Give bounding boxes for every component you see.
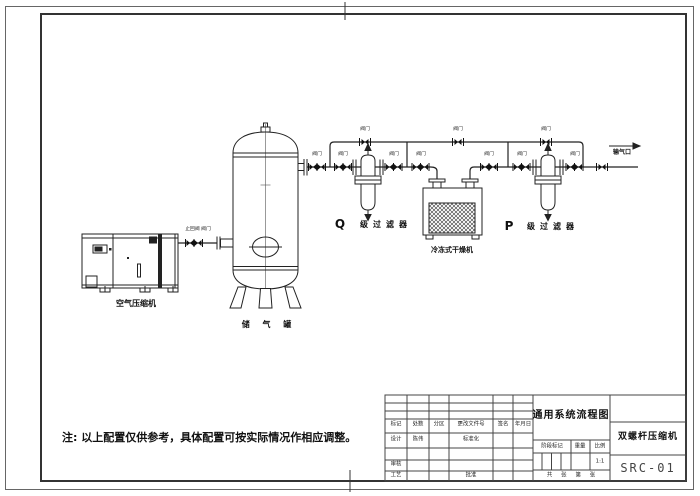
tb-header-count: 处数 (413, 422, 424, 427)
valve-tag: 阀门 (416, 152, 426, 157)
valve-tag: 阀门 (484, 152, 494, 157)
tank-symbol (230, 123, 307, 308)
valve-tag: 阀门 (517, 152, 527, 157)
p-filter-symbol (533, 144, 563, 221)
compressor-label: 空气压缩机 (116, 300, 156, 308)
tb-scale-value: 1:1 (596, 459, 605, 464)
tb-design-label: 设计 (391, 437, 402, 442)
check-valve-label: 止回阀 阀门 (185, 227, 211, 232)
tb-header-docno: 更改文件号 (457, 422, 484, 427)
discharge-pipe (178, 237, 233, 250)
tb-header-date: 年月日 (515, 422, 531, 427)
drawing-title: 通用系统流程图 (533, 411, 610, 421)
drawing-number: SRC-01 (620, 462, 675, 474)
q-filter-label: 级过滤器 (360, 221, 412, 229)
tb-designer-name: 陈伟 (413, 437, 424, 442)
tb-header-mark: 标记 (391, 422, 402, 427)
tb-scale-label: 比例 (595, 444, 606, 449)
compressor-symbol (82, 234, 178, 292)
valve-tag: 阀门 (389, 152, 399, 157)
product-name: 双螺杆压缩机 (618, 433, 678, 442)
centering-marks (345, 2, 350, 492)
tb-review-label: 审核 (391, 462, 402, 467)
drawing-sheet: 空气压缩机 储 气 罐 止回阀 阀门 Q 级过滤器 P 级过滤器 冷冻式干燥机 … (0, 0, 700, 496)
tb-approval-label: 批准 (466, 473, 477, 478)
q-filter-prefix: Q (335, 218, 345, 230)
p-filter-label: 级过滤器 (527, 223, 579, 231)
valve-tag: 阀门 (541, 127, 551, 132)
p-filter-prefix: P (505, 220, 514, 232)
tb-stage-label: 阶段标记 (541, 444, 563, 449)
tank-label: 储 气 罐 (242, 321, 297, 329)
drawing-note: 注: 以上配置仅供参考，具体配置可按实际情况作相应调整。 (62, 429, 356, 445)
tb-standardization-label: 标准化 (463, 437, 479, 442)
valve-tag: 阀门 (570, 152, 580, 157)
dryer-label: 冷冻式干燥机 (431, 247, 473, 254)
valve-tag: 阀门 (338, 152, 348, 157)
tb-sheet-info: 共 张 第 张 (547, 473, 595, 478)
valve-tag: 阀门 (453, 127, 463, 132)
q-filter-symbol (353, 144, 383, 221)
tb-weight-label: 重量 (575, 444, 586, 449)
dryer-symbol (423, 188, 482, 239)
valve-tag: 阀门 (312, 152, 322, 157)
valve-tag: 阀门 (360, 127, 370, 132)
tb-process-label: 工艺 (391, 473, 402, 478)
tb-header-signature: 签名 (498, 422, 509, 427)
tb-header-zone: 分区 (434, 422, 445, 427)
outlet-label: 输气口 (613, 150, 631, 156)
drawing-canvas (0, 0, 700, 496)
